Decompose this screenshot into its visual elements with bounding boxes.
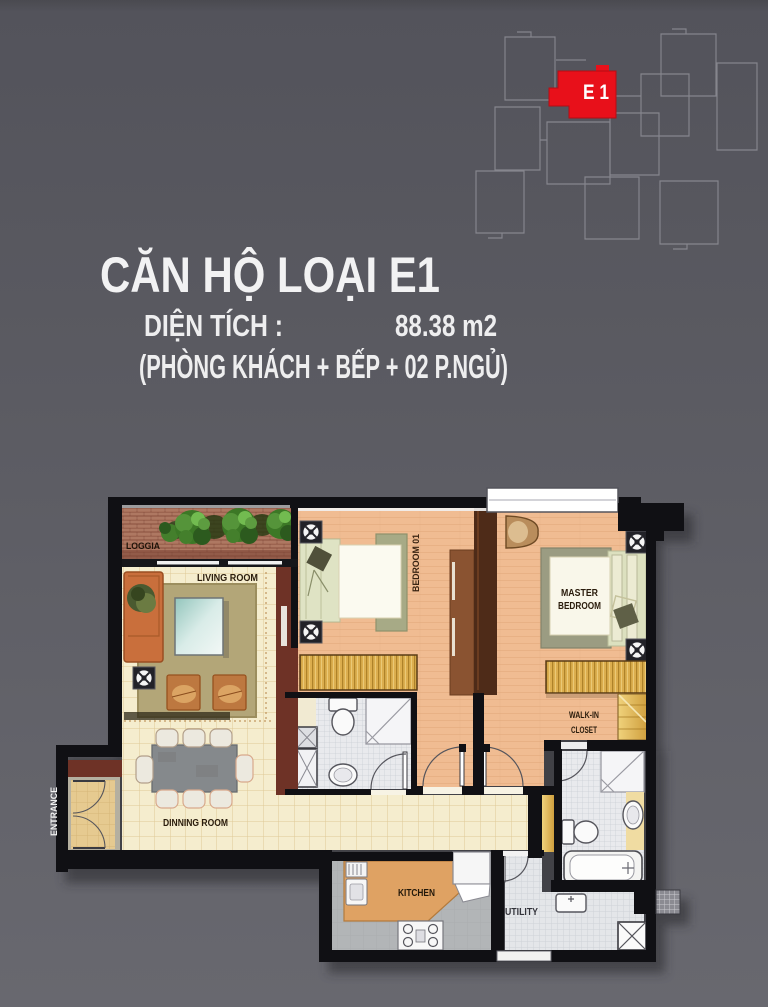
svg-text:BEDROOM 01: BEDROOM 01 (411, 533, 422, 592)
svg-text:DIỆN TÍCH :: DIỆN TÍCH : (144, 307, 283, 343)
svg-text:(PHÒNG KHÁCH + BẾP + 02 P.NGỦ): (PHÒNG KHÁCH + BẾP + 02 P.NGỦ) (139, 348, 508, 385)
svg-text:LIVING ROOM: LIVING ROOM (197, 573, 258, 584)
svg-text:KITCHEN: KITCHEN (398, 888, 435, 899)
svg-text:CLOSET: CLOSET (571, 725, 597, 735)
svg-text:BEDROOM: BEDROOM (558, 600, 601, 612)
svg-text:88.38 m2: 88.38 m2 (395, 308, 497, 343)
svg-text:CĂN HỘ LOẠI E1: CĂN HỘ LOẠI E1 (100, 246, 440, 303)
svg-text:WALK-IN: WALK-IN (569, 710, 599, 720)
svg-text:MASTER: MASTER (561, 587, 598, 599)
svg-text:E 1: E 1 (583, 81, 609, 104)
svg-text:DINNING ROOM: DINNING ROOM (163, 818, 228, 829)
svg-text:ENTRANCE: ENTRANCE (49, 787, 59, 836)
svg-text:UTILITY: UTILITY (505, 907, 538, 918)
svg-text:LOGGIA: LOGGIA (126, 541, 160, 552)
